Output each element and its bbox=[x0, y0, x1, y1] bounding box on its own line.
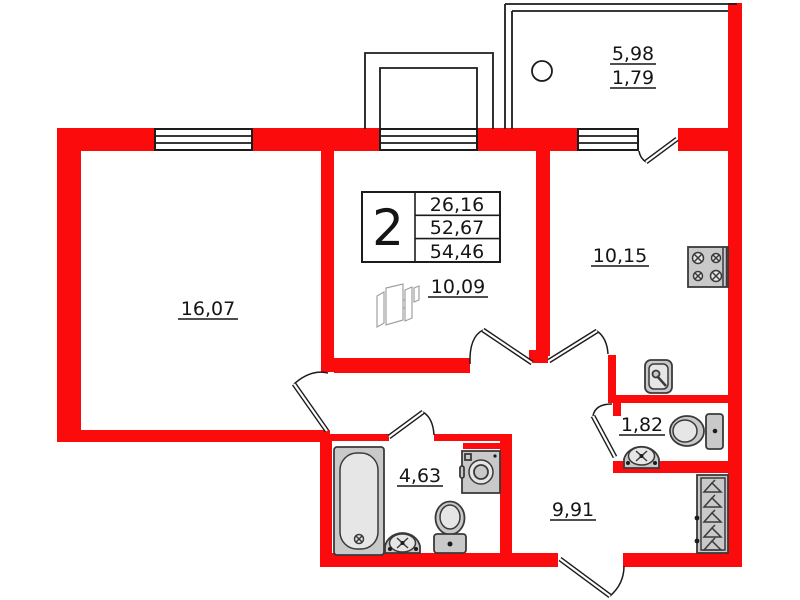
wall-hall-kitchen bbox=[536, 151, 550, 356]
wall-bath-top-left bbox=[332, 434, 389, 441]
door-bathroom bbox=[389, 412, 434, 437]
rooms-count: 2 bbox=[372, 199, 404, 257]
living-area-value: 26,16 bbox=[430, 194, 484, 216]
door-livingroom bbox=[294, 372, 328, 431]
livingroom-label: 16,07 bbox=[181, 298, 235, 320]
total-area-value: 54,46 bbox=[430, 241, 484, 263]
balcony-door-opening bbox=[638, 128, 678, 151]
hall-wardrobe-sketch-icon bbox=[377, 284, 419, 327]
bathroom-label: 4,63 bbox=[399, 465, 441, 487]
wall-bath-left bbox=[320, 434, 332, 567]
hallway-label: 9,91 bbox=[552, 499, 594, 521]
wall-bath-right bbox=[500, 438, 512, 567]
kitchen-label: 10,15 bbox=[593, 245, 647, 267]
wc-label: 1,82 bbox=[621, 414, 663, 436]
window-livingroom bbox=[155, 129, 252, 150]
floor-plan: 2 26,16 52,67 54,46 16,07 10,09 10,15 5,… bbox=[0, 0, 800, 600]
wc-washbasin-icon bbox=[624, 447, 659, 468]
hall-label: 10,09 bbox=[431, 276, 485, 298]
wall-bath-inner-bar bbox=[463, 443, 500, 449]
door-kitchen bbox=[549, 331, 608, 361]
window-balcony-wall bbox=[578, 129, 638, 150]
room-area-labels: 16,07 10,09 10,15 5,98 1,79 1,82 4,63 9,… bbox=[178, 43, 665, 521]
wardrobe-icon bbox=[695, 475, 728, 553]
wall-left bbox=[57, 128, 81, 442]
stove-icon bbox=[688, 247, 728, 287]
wall-livingroom-hall bbox=[321, 151, 334, 372]
balcony-glazing-mark bbox=[532, 61, 552, 81]
apartment-area-value: 52,67 bbox=[430, 217, 484, 239]
floor-plan-canvas: 2 26,16 52,67 54,46 16,07 10,09 10,15 5,… bbox=[0, 0, 800, 600]
wall-right bbox=[728, 3, 742, 567]
bath-washbasin-icon bbox=[385, 533, 420, 553]
apartment-info-table: 2 26,16 52,67 54,46 bbox=[362, 192, 500, 263]
bath-toilet-icon bbox=[434, 502, 466, 554]
door-hall bbox=[470, 330, 532, 364]
washing-machine-icon bbox=[460, 451, 500, 493]
bay-window-outline bbox=[365, 53, 493, 129]
wall-kitchen-wc-stub bbox=[608, 355, 616, 397]
window-hall-bay bbox=[380, 129, 477, 150]
wall-hall-bottom bbox=[334, 358, 470, 373]
kitchen-sink-icon bbox=[645, 360, 672, 393]
balcony-reduced-label: 1,79 bbox=[612, 67, 654, 89]
door-wc bbox=[593, 404, 615, 457]
wall-livingroom-bottom bbox=[57, 430, 330, 442]
wc-toilet-icon bbox=[670, 414, 723, 449]
wall-wc-left-stub bbox=[613, 403, 621, 416]
bathtub-icon bbox=[334, 447, 384, 555]
balcony-full-label: 5,98 bbox=[612, 43, 654, 65]
wall-wc-top bbox=[608, 395, 733, 403]
